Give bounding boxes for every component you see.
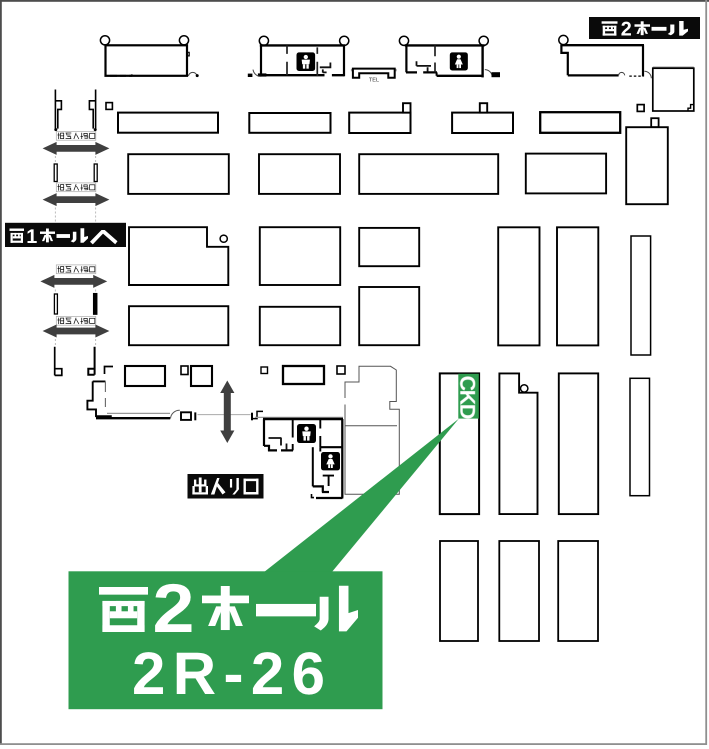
- svg-text:2: 2: [621, 19, 632, 41]
- svg-text:1: 1: [26, 226, 37, 248]
- svg-text:2: 2: [153, 570, 195, 647]
- svg-text:2R-26: 2R-26: [132, 640, 325, 707]
- svg-text:CKD: CKD: [455, 376, 479, 419]
- svg-text:TEL: TEL: [369, 78, 379, 84]
